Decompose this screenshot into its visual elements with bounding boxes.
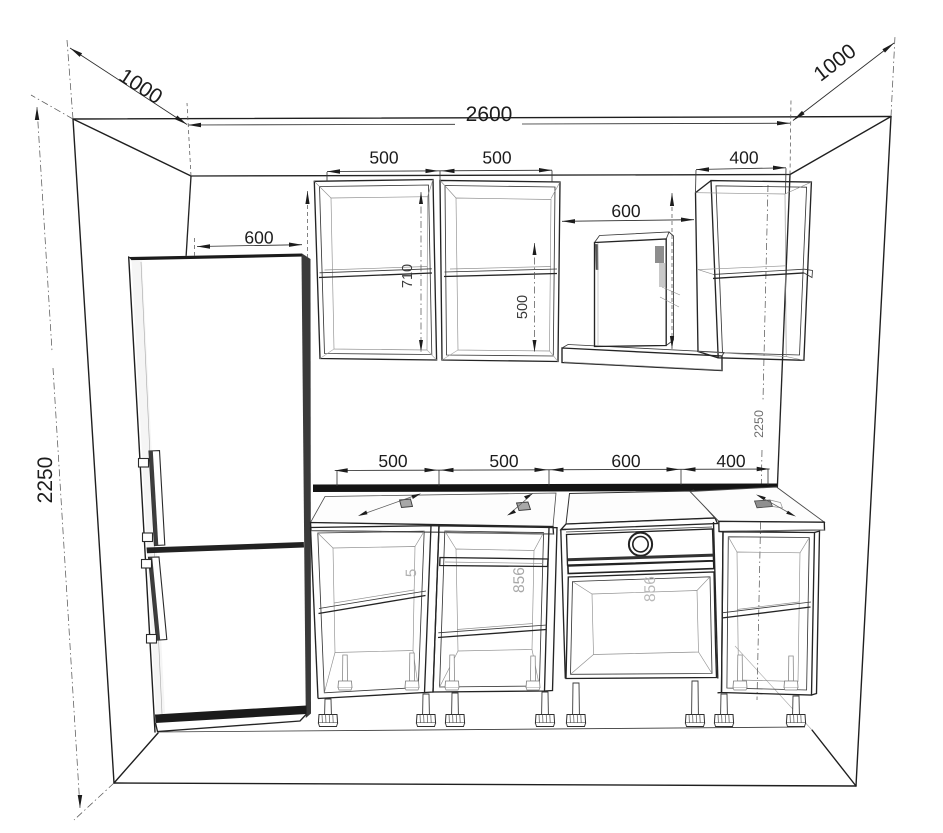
svg-text:500: 500 [378,451,407,471]
svg-text:400: 400 [729,148,758,168]
svg-text:500: 500 [489,451,518,471]
svg-text:2600: 2600 [466,103,513,126]
svg-text:600: 600 [611,201,640,221]
svg-text:400: 400 [716,451,745,471]
svg-text:856: 856 [511,567,528,593]
svg-text:1000: 1000 [810,39,861,86]
svg-text:2250: 2250 [34,457,57,504]
svg-text:500: 500 [369,148,398,168]
svg-text:600: 600 [611,451,640,471]
svg-text:5: 5 [403,569,420,577]
svg-text:856: 856 [642,576,659,602]
svg-text:2250: 2250 [752,410,766,438]
svg-text:1000: 1000 [115,64,167,109]
svg-text:500: 500 [515,295,531,319]
svg-text:500: 500 [482,148,511,168]
svg-text:600: 600 [244,228,273,248]
svg-text:710: 710 [400,264,416,288]
